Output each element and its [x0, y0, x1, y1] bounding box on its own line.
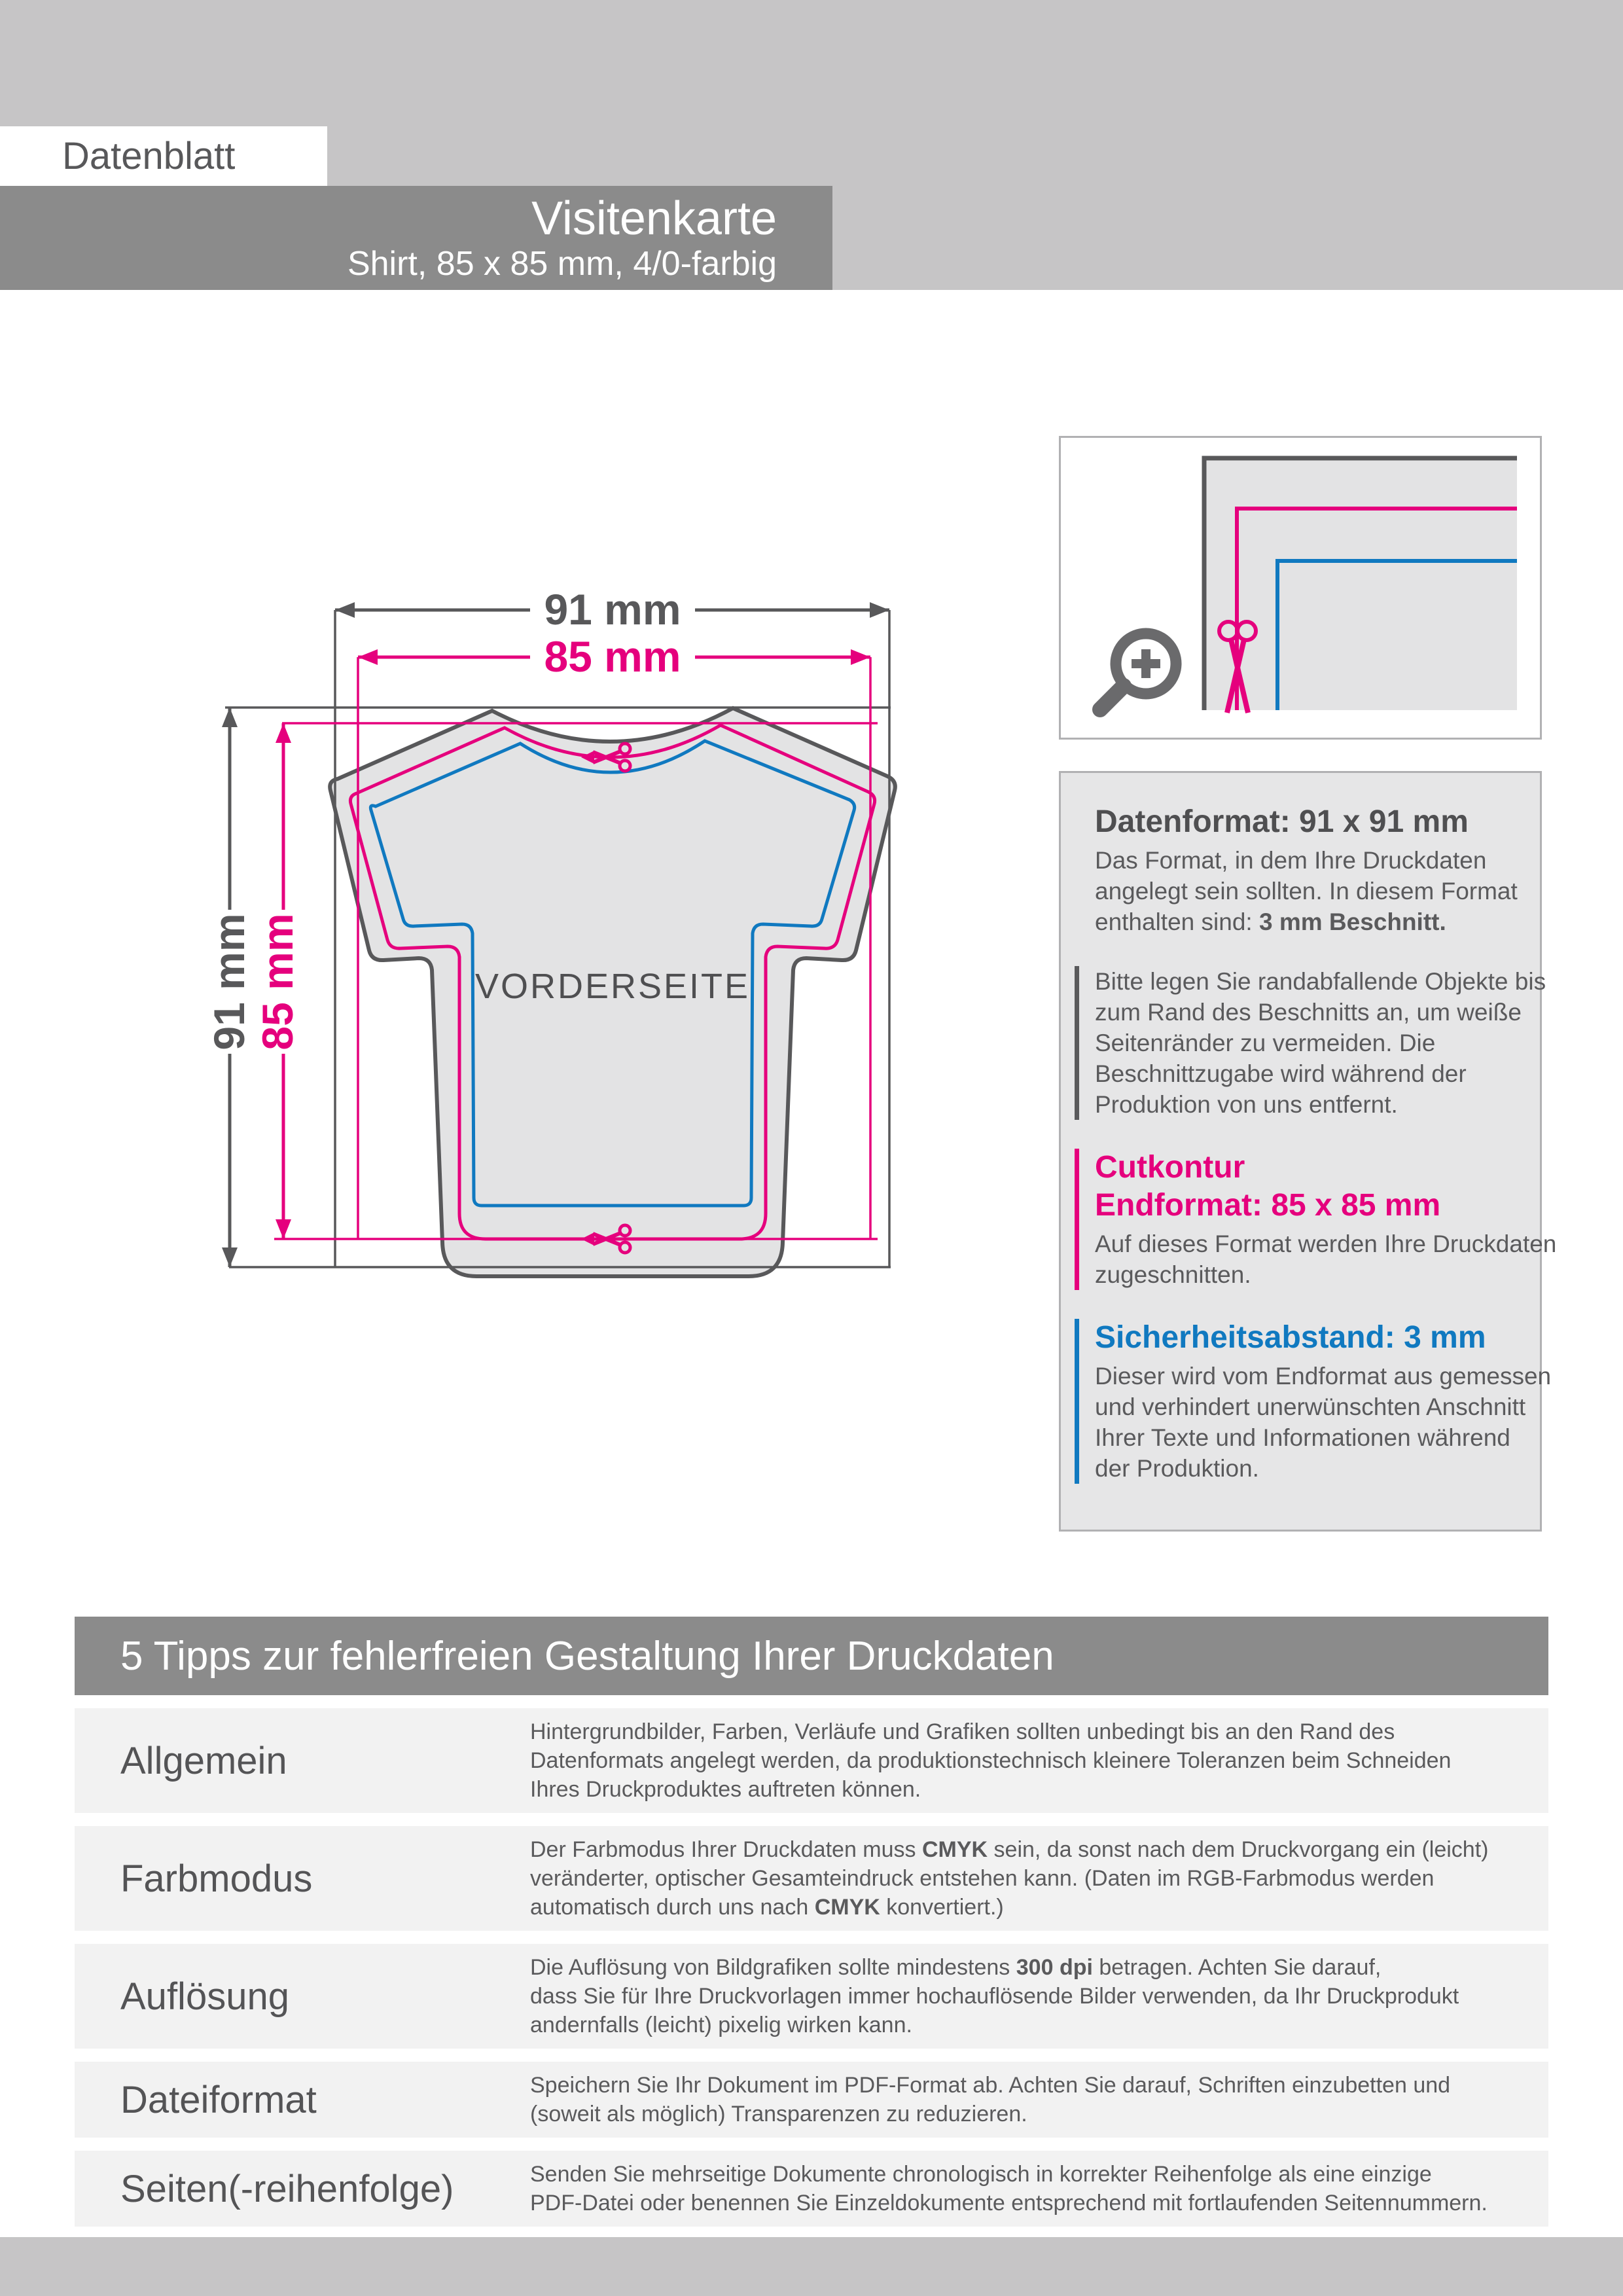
text-line: (soweit als möglich) Transparenzen zu re… — [530, 2100, 1450, 2128]
datenblatt-box: Datenblatt — [0, 126, 327, 186]
text-segment: zugeschnitten. — [1095, 1261, 1251, 1288]
text-line: veränderter, optischer Gesamteindruck en… — [530, 1864, 1488, 1893]
text-segment: 300 dpi — [1016, 1955, 1093, 1980]
text-line: angelegt sein sollten. In diesem Format — [1095, 876, 1514, 906]
endformat-heading: Endformat: 85 x 85 mm — [1095, 1187, 1514, 1225]
shirt-dimension-diagram: 91 mm 85 mm 91 mm 85 mm VORDERSEITE — [183, 576, 955, 1309]
text-line: Seitenränder zu vermeiden. Die — [1095, 1028, 1514, 1058]
tip-label: Farbmodus — [75, 1857, 530, 1901]
text-line: Senden Sie mehrseitige Dokumente chronol… — [530, 2160, 1488, 2189]
text-line: Bitte legen Sie randabfallende Objekte b… — [1095, 966, 1514, 997]
text-segment: betragen. Achten Sie darauf, — [1093, 1955, 1381, 1980]
tip-label: Seiten(-reihenfolge) — [75, 2167, 530, 2211]
text-segment: Senden Sie mehrseitige Dokumente chronol… — [530, 2162, 1432, 2187]
text-segment: Das Format, in dem Ihre Druckdaten — [1095, 847, 1486, 874]
text-segment: Seitenränder zu vermeiden. Die — [1095, 1030, 1435, 1056]
text-line: Datenformats angelegt werden, da produkt… — [530, 1746, 1451, 1775]
page-title: Visitenkarte — [531, 193, 777, 244]
table-row: Dateiformat Speichern Sie Ihr Dokument i… — [75, 2062, 1548, 2138]
text-segment: Dieser wird vom Endformat aus gemessen — [1095, 1363, 1551, 1390]
text-segment: Ihres Druckproduktes auftreten können. — [530, 1777, 921, 1802]
text-segment: Auf dieses Format werden Ihre Druckdaten — [1095, 1230, 1556, 1257]
section-datenformat: Datenformat: 91 x 91 mm Das Format, in d… — [1095, 803, 1514, 937]
text-line: Der Farbmodus Ihrer Druckdaten muss CMYK… — [530, 1835, 1488, 1864]
text-segment: Der Farbmodus Ihrer Druckdaten muss — [530, 1837, 922, 1862]
datenblatt-label: Datenblatt — [62, 134, 235, 178]
text-line: der Produktion. — [1095, 1453, 1514, 1484]
beschnitt-note-text: Bitte legen Sie randabfallende Objekte b… — [1095, 966, 1514, 1120]
text-line: und verhindert unerwünschten Anschnitt — [1095, 1391, 1514, 1422]
tip-label: Dateiformat — [75, 2078, 530, 2122]
sicherheitsabstand-text: Dieser wird vom Endformat aus gemessenun… — [1095, 1361, 1514, 1484]
text-segment: veränderter, optischer Gesamteindruck en… — [530, 1866, 1434, 1891]
text-segment: (soweit als möglich) Transparenzen zu re… — [530, 2102, 1027, 2126]
cutkontur-heading: Cutkontur — [1095, 1149, 1514, 1187]
text-segment: Die Auflösung von Bildgrafiken sollte mi… — [530, 1955, 1016, 1980]
height-bleed-label: 91 mm — [205, 913, 253, 1050]
text-segment: 3 mm Beschnitt. — [1259, 908, 1446, 935]
table-row: Farbmodus Der Farbmodus Ihrer Druckdaten… — [75, 1826, 1548, 1931]
table-row: Seiten(-reihenfolge) Senden Sie mehrseit… — [75, 2151, 1548, 2227]
cutkontur-text: Auf dieses Format werden Ihre Druckdaten… — [1095, 1229, 1514, 1290]
tips-table: Allgemein Hintergrundbilder, Farben, Ver… — [75, 1708, 1548, 2227]
zoom-detail-box — [1059, 436, 1542, 740]
page-subtitle: Shirt, 85 x 85 mm, 4/0-farbig — [348, 244, 777, 283]
text-line: andernfalls (leicht) pixelig wirken kann… — [530, 2011, 1459, 2039]
corner-detail-diagram — [1061, 438, 1540, 738]
text-segment: CMYK — [922, 1837, 988, 1862]
tips-heading: 5 Tipps zur fehlerfreien Gestaltung Ihre… — [120, 1633, 1054, 1679]
text-line: Hintergrundbilder, Farben, Verläufe und … — [530, 1717, 1451, 1746]
tip-label: Auflösung — [75, 1975, 530, 2018]
text-segment: Hintergrundbilder, Farben, Verläufe und … — [530, 1719, 1395, 1744]
table-row: Auflösung Die Auflösung von Bildgrafiken… — [75, 1944, 1548, 2049]
tip-text: Die Auflösung von Bildgrafiken sollte mi… — [530, 1953, 1485, 2039]
text-segment: Bitte legen Sie randabfallende Objekte b… — [1095, 968, 1546, 995]
text-segment: PDF-Datei oder benennen Sie Einzeldokume… — [530, 2191, 1488, 2215]
magnifier-plus-icon — [1100, 634, 1176, 709]
section-beschnitt-note: Bitte legen Sie randabfallende Objekte b… — [1075, 966, 1514, 1120]
text-line: Dieser wird vom Endformat aus gemessen — [1095, 1361, 1514, 1391]
text-segment: enthalten sind: — [1095, 908, 1259, 935]
datenformat-text: Das Format, in dem Ihre Druckdatenangele… — [1095, 845, 1514, 937]
text-line: Speichern Sie Ihr Dokument im PDF-Format… — [530, 2071, 1450, 2100]
text-segment: Ihrer Texte und Informationen während — [1095, 1424, 1510, 1451]
text-segment: dass Sie für Ihre Druckvorlagen immer ho… — [530, 1984, 1459, 2009]
text-line: Das Format, in dem Ihre Druckdaten — [1095, 845, 1514, 876]
text-line: enthalten sind: 3 mm Beschnitt. — [1095, 906, 1514, 937]
text-line: automatisch durch uns nach CMYK konverti… — [530, 1893, 1488, 1922]
datasheet-page: Datenblatt Visitenkarte Shirt, 85 x 85 m… — [0, 0, 1623, 2296]
text-segment: der Produktion. — [1095, 1455, 1259, 1482]
text-line: Ihres Druckproduktes auftreten können. — [530, 1775, 1451, 1804]
tips-heading-band: 5 Tipps zur fehlerfreien Gestaltung Ihre… — [75, 1617, 1548, 1695]
dimension-width-cut: 85 mm — [358, 632, 870, 681]
height-cut-label: 85 mm — [253, 913, 302, 1050]
dimension-width-bleed: 91 mm — [335, 585, 889, 634]
text-segment: andernfalls (leicht) pixelig wirken kann… — [530, 2013, 912, 2037]
bottom-silver-band — [0, 2237, 1623, 2296]
tip-text: Speichern Sie Ihr Dokument im PDF-Format… — [530, 2071, 1476, 2128]
table-row: Allgemein Hintergrundbilder, Farben, Ver… — [75, 1708, 1548, 1813]
sicherheitsabstand-heading: Sicherheitsabstand: 3 mm — [1095, 1319, 1514, 1357]
text-segment: Speichern Sie Ihr Dokument im PDF-Format… — [530, 2073, 1450, 2098]
text-line: Ihrer Texte und Informationen während — [1095, 1422, 1514, 1453]
text-line: Produktion von uns entfernt. — [1095, 1089, 1514, 1120]
paper-corner — [1204, 458, 1517, 710]
width-bleed-label: 91 mm — [544, 585, 681, 634]
text-segment: zum Rand des Beschnitts an, um weiße — [1095, 999, 1522, 1026]
text-segment: sein, da sonst nach dem Druckvorgang ein… — [988, 1837, 1488, 1862]
text-line: zum Rand des Beschnitts an, um weiße — [1095, 997, 1514, 1028]
tip-label: Allgemein — [75, 1739, 530, 1783]
datenformat-heading: Datenformat: 91 x 91 mm — [1095, 803, 1514, 841]
width-cut-label: 85 mm — [544, 632, 681, 681]
text-segment: CMYK — [815, 1895, 880, 1920]
text-line: Auf dieses Format werden Ihre Druckdaten — [1095, 1229, 1514, 1259]
text-line: PDF-Datei oder benennen Sie Einzeldokume… — [530, 2189, 1488, 2217]
text-segment: und verhindert unerwünschten Anschnitt — [1095, 1393, 1525, 1420]
text-segment: automatisch durch uns nach — [530, 1895, 815, 1920]
text-line: dass Sie für Ihre Druckvorlagen immer ho… — [530, 1982, 1459, 2011]
tip-text: Senden Sie mehrseitige Dokumente chronol… — [530, 2160, 1514, 2217]
format-info-panel: Datenformat: 91 x 91 mm Das Format, in d… — [1059, 771, 1542, 1532]
title-band: Visitenkarte Shirt, 85 x 85 mm, 4/0-farb… — [0, 186, 832, 290]
front-side-label: VORDERSEITE — [475, 967, 750, 1006]
text-segment: konvertiert.) — [880, 1895, 1004, 1920]
text-segment: Beschnittzugabe wird während der — [1095, 1060, 1467, 1087]
dimension-height-cut: 85 mm — [253, 723, 302, 1239]
text-line: Beschnittzugabe wird während der — [1095, 1058, 1514, 1089]
section-sicherheitsabstand: Sicherheitsabstand: 3 mm Dieser wird vom… — [1075, 1319, 1514, 1484]
text-segment: Datenformats angelegt werden, da produkt… — [530, 1748, 1451, 1773]
text-segment: angelegt sein sollten. In diesem Format — [1095, 878, 1518, 905]
text-line: Die Auflösung von Bildgrafiken sollte mi… — [530, 1953, 1459, 1982]
dimension-height-bleed: 91 mm — [205, 708, 253, 1267]
tip-text: Der Farbmodus Ihrer Druckdaten muss CMYK… — [530, 1835, 1514, 1922]
tip-text: Hintergrundbilder, Farben, Verläufe und … — [530, 1717, 1477, 1804]
text-line: zugeschnitten. — [1095, 1259, 1514, 1290]
text-segment: Produktion von uns entfernt. — [1095, 1091, 1398, 1118]
section-cutkontur: Cutkontur Endformat: 85 x 85 mm Auf dies… — [1075, 1149, 1514, 1290]
